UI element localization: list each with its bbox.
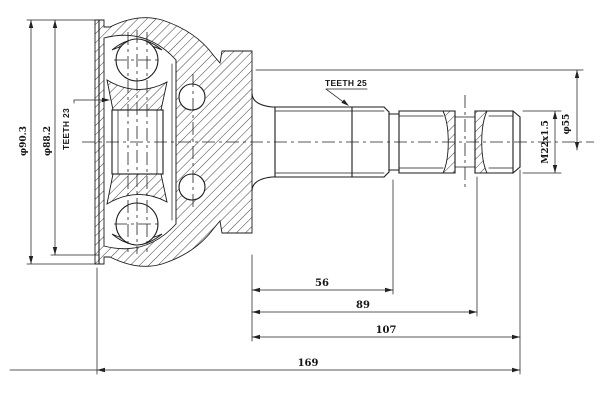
label-teeth-shaft: TEETH 25 — [325, 78, 367, 88]
label-dia-end: φ55 — [562, 114, 572, 135]
label-dia-housing-outer: φ90.3 — [19, 126, 29, 156]
centerlines — [82, 30, 594, 254]
label-teeth-inner: TEETH 23 — [61, 108, 71, 150]
fillet-bottom — [252, 177, 272, 190]
cage-pocket-bottom — [179, 174, 205, 200]
dim-dia-end: φ55 — [256, 70, 583, 150]
label-thread-spec: M22x1.5 — [541, 120, 551, 164]
dim-label-107: 107 — [376, 325, 397, 336]
label-dia-housing-inner: φ88.2 — [43, 126, 53, 156]
dim-thread: M22x1.5 — [523, 111, 561, 173]
fillet-top — [252, 94, 272, 107]
dim-label-89: 89 — [356, 300, 370, 311]
drawing-sheet: φ90.3 φ88.2 TEETH 23 TEETH 25 M22x1.5 φ5… — [0, 0, 600, 400]
dim-lengths: 56 89 107 169 — [10, 170, 520, 374]
dim-label-169: 169 — [298, 358, 319, 369]
callout-teeth-25: TEETH 25 — [325, 78, 367, 106]
cv-joint-technical-drawing: φ90.3 φ88.2 TEETH 23 TEETH 25 M22x1.5 φ5… — [0, 0, 600, 400]
cage-pocket-top — [179, 84, 205, 110]
dim-label-56: 56 — [315, 278, 329, 289]
